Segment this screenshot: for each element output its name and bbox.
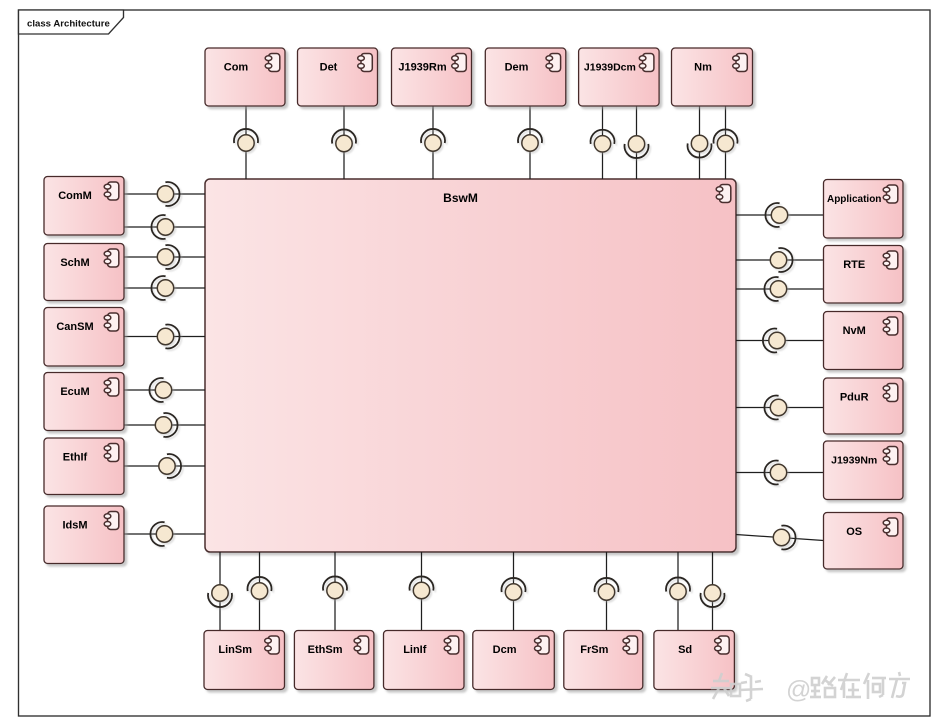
svg-text:RTE: RTE <box>843 259 865 271</box>
svg-text:BswM: BswM <box>443 191 478 205</box>
svg-text:PduR: PduR <box>840 392 869 404</box>
svg-text:@: @ <box>786 676 811 704</box>
svg-text:class Architecture: class Architecture <box>27 19 110 30</box>
svg-text:J1939Nm: J1939Nm <box>831 455 877 467</box>
svg-text:Nm: Nm <box>694 62 712 74</box>
svg-text:J1939Rm: J1939Rm <box>398 62 447 74</box>
svg-text:LinIf: LinIf <box>403 644 427 656</box>
svg-text:SchM: SchM <box>60 257 89 269</box>
svg-text:EthIf: EthIf <box>63 452 88 464</box>
svg-text:Sd: Sd <box>678 644 692 656</box>
svg-text:NvM: NvM <box>843 325 866 337</box>
svg-text:LinSm: LinSm <box>218 644 252 656</box>
svg-text:EthSm: EthSm <box>308 644 343 656</box>
svg-text:Dem: Dem <box>505 62 529 74</box>
svg-text:Dcm: Dcm <box>493 644 517 656</box>
svg-text:ComM: ComM <box>58 190 92 202</box>
svg-text:OS: OS <box>846 526 862 538</box>
svg-text:IdsM: IdsM <box>62 520 87 532</box>
svg-text:Com: Com <box>224 62 249 74</box>
svg-text:FrSm: FrSm <box>580 644 608 656</box>
svg-text:J1939Dcm: J1939Dcm <box>584 62 636 74</box>
svg-text:CanSM: CanSM <box>56 321 93 333</box>
svg-text:Application: Application <box>827 194 881 205</box>
svg-text:Det: Det <box>320 62 338 74</box>
svg-text:EcuM: EcuM <box>60 386 89 398</box>
